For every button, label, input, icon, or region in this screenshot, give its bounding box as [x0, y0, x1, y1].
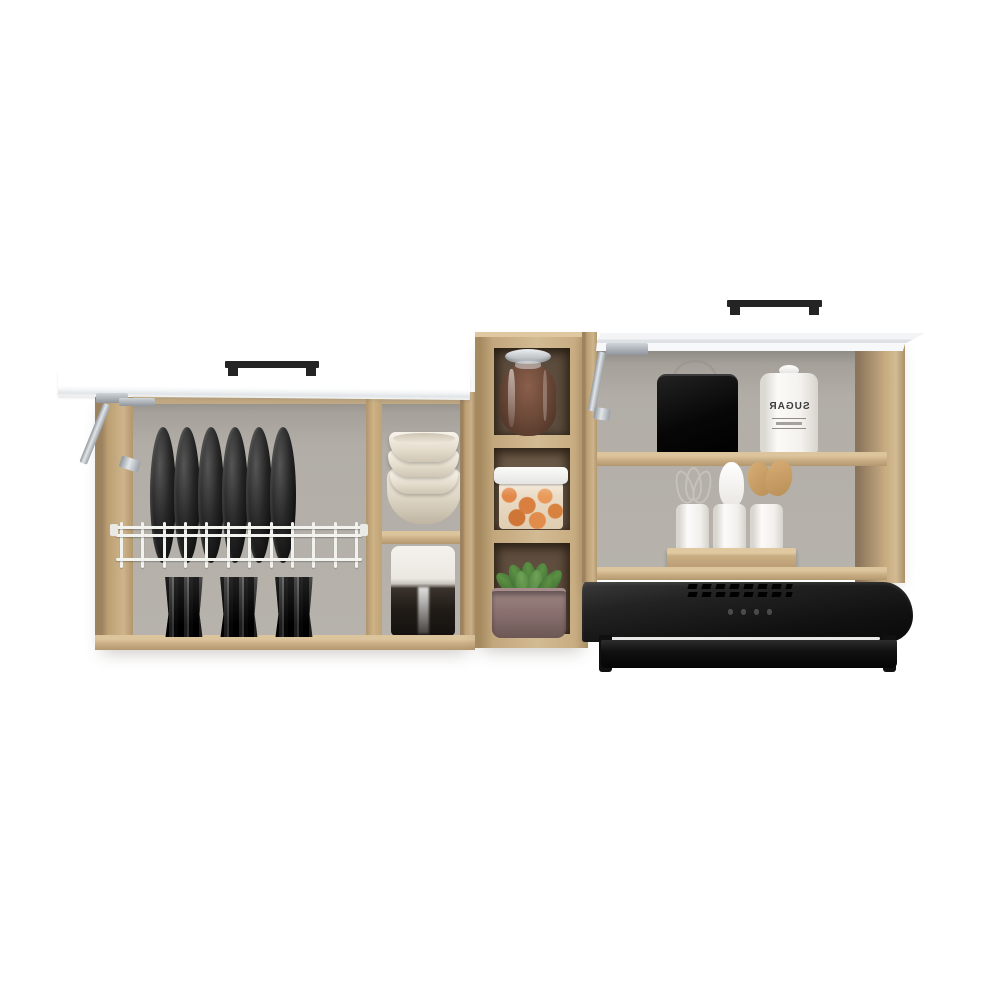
- snack-container-lid: [494, 467, 568, 484]
- black-cup: [163, 577, 205, 637]
- left-cabinet-right-frame: [460, 392, 475, 650]
- white-spoon: [719, 462, 744, 507]
- hood-button: [754, 610, 759, 615]
- utensil-jar: [713, 504, 746, 552]
- hinge-right-side: [850, 345, 886, 357]
- product-photo-kitchen-cabinet-set: SUGAR: [0, 0, 1000, 1000]
- hood-button: [741, 610, 746, 615]
- two-tone-canister: [391, 546, 455, 636]
- handle-leg: [730, 306, 740, 315]
- plant-pot: [492, 588, 566, 638]
- right-cabinet-door: [596, 313, 950, 351]
- glass-jar-neck: [515, 361, 541, 369]
- hood-buttons: [728, 610, 772, 615]
- sugar-canister: SUGAR: [760, 373, 818, 454]
- right-cabinet-bottom-shelf: [597, 567, 887, 580]
- rack-rail-mid: [116, 534, 362, 537]
- utensil-jars: [676, 504, 783, 552]
- vent-row: [687, 584, 793, 589]
- utensil-jar: [750, 504, 783, 552]
- rack-mount-left: [110, 524, 118, 536]
- strut-foot-right-cab: [593, 407, 611, 421]
- hood-vents: [688, 584, 792, 598]
- right-door-handle: [727, 300, 822, 315]
- hood-button: [728, 610, 733, 615]
- black-cups: [163, 577, 315, 637]
- bread-bin: [657, 374, 738, 456]
- vent-row: [687, 592, 793, 597]
- rack-rail-bottom: [116, 558, 362, 561]
- utensil-jar: [676, 504, 709, 552]
- glass-jar: [500, 363, 556, 436]
- sugar-label: SUGAR: [760, 401, 818, 412]
- center-shelf-unit: [475, 332, 588, 648]
- left-cabinet-bottom-panel: [95, 635, 475, 650]
- black-cup: [218, 577, 260, 637]
- center-unit-top-edge: [475, 332, 588, 337]
- handle-leg: [809, 306, 819, 315]
- bowl-1: [389, 432, 459, 462]
- bowl-compartment-shelf: [382, 531, 462, 544]
- right-cabinet: SUGAR: [582, 332, 905, 583]
- right-cabinet-middle-shelf: [597, 452, 887, 466]
- hinge-arm-left: [119, 398, 155, 406]
- handle-bar: [727, 300, 822, 307]
- left-cabinet: [95, 392, 475, 650]
- range-hood: [582, 580, 913, 674]
- handle-bar: [225, 361, 319, 368]
- handle-leg: [228, 367, 238, 376]
- hinge-bracket-right-cab-left: [606, 343, 648, 355]
- snack-container: [499, 482, 563, 529]
- sugar-label-sublines: [772, 415, 806, 432]
- rack-mount-right: [360, 524, 368, 536]
- handle-leg: [306, 367, 316, 376]
- wire-dish-rack: [116, 522, 362, 568]
- hood-glass-visor: [601, 640, 897, 668]
- left-door-handle: [225, 361, 319, 376]
- black-cup: [273, 577, 315, 637]
- hood-button: [767, 610, 772, 615]
- hinge-bowl-compartment: [410, 399, 444, 410]
- rack-rail-top: [116, 526, 362, 529]
- wooden-spoons: [748, 460, 794, 508]
- left-cabinet-divider: [366, 398, 382, 638]
